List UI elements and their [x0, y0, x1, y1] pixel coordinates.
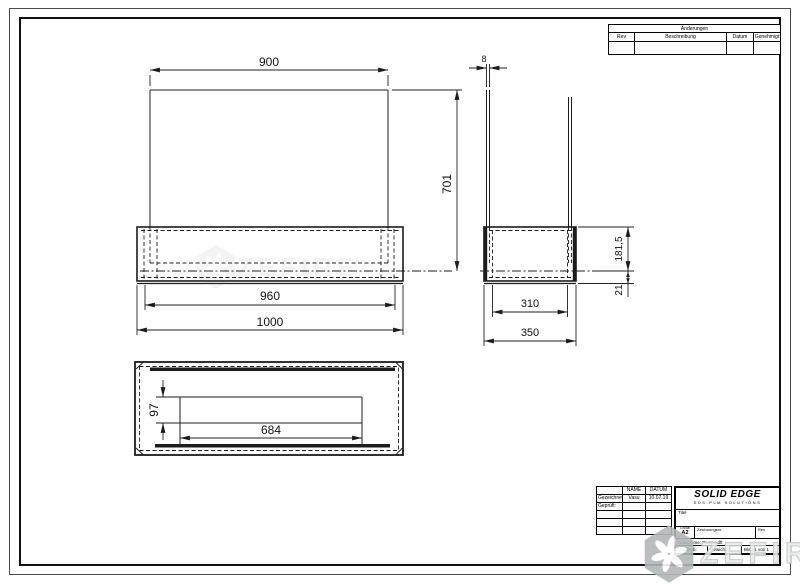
- drawn-row: Gezeichnet: Vasu 10.07.19: [597, 495, 671, 503]
- empty-signature-row: [597, 511, 671, 519]
- revision-table: Änderungen Rev Beschreibung Datum Genehm…: [608, 24, 781, 55]
- side-hidden-lines: [487, 227, 572, 278]
- drawing-page: { "revision_table": { "title": "Änderung…: [0, 0, 800, 583]
- drawing-number-row: Größe A2 Zeichnungsnr. Rev: [676, 527, 779, 539]
- titleblock-main: SOLID EDGE EDS-PLM SOLUTIONS Titel Größe…: [674, 486, 781, 555]
- solid-edge-logo: SOLID EDGE EDS-PLM SOLUTIONS: [676, 488, 779, 510]
- revision-table-title: Änderungen: [609, 25, 780, 33]
- revision-col-date: Datum: [726, 33, 753, 42]
- size-value: A2: [676, 531, 694, 537]
- front-box-outline: [137, 227, 403, 281]
- empty-signature-row: [597, 527, 671, 534]
- dim-side-glass-thickness: 8: [481, 54, 486, 64]
- side-box-thick-edges: [486, 227, 575, 281]
- dim-side-box-height: 181,5: [614, 236, 625, 261]
- revision-col-desc: Beschreibung: [634, 33, 726, 42]
- bottom-view-lines: [135, 362, 403, 455]
- checked-label: Geprüft:: [597, 503, 622, 510]
- size-field: Größe A2: [676, 527, 695, 538]
- dim-front-inner-width: 960: [260, 289, 280, 303]
- drawn-label: Gezeichnet:: [597, 495, 622, 502]
- drawing-no-field: Zeichnungsnr.: [695, 527, 756, 538]
- logo-subtitle: EDS-PLM SOLUTIONS: [676, 501, 779, 505]
- dim-side-outer-depth: 350: [521, 327, 539, 339]
- dim-bottom-slot-height: 97: [147, 403, 161, 417]
- drawn-name: Vasu: [622, 495, 645, 502]
- bottom-glass-strip-top: [150, 368, 395, 372]
- date-header: DATUM: [645, 487, 671, 494]
- dim-front-height: 701: [440, 174, 454, 194]
- revision-table-header: Rev Beschreibung Datum Genehmigt: [609, 33, 780, 42]
- front-glass-outline: [150, 90, 388, 227]
- weight-field: Gewicht:: [708, 546, 742, 553]
- revision-table-empty-row: [609, 42, 780, 54]
- dim-front-top-width: 900: [259, 55, 279, 69]
- bottom-corner-ticks: [136, 363, 403, 455]
- side-dimension-lines: [469, 64, 634, 346]
- title-field: Titel: [676, 510, 779, 527]
- bottom-glass-strip-bottom: [155, 444, 390, 448]
- scale-row: Maßstab: Gewicht: Blatt 1 von 1: [676, 546, 779, 553]
- revision-col-rev: Rev: [609, 33, 634, 42]
- filename-field: Dateiname: Rivano.dft: [676, 539, 779, 546]
- dim-side-inner-depth: 310: [521, 298, 539, 310]
- checked-row: Geprüft:: [597, 503, 671, 511]
- front-view-lines: [137, 90, 452, 284]
- dim-front-outer-width: 1000: [257, 315, 284, 329]
- side-box-outline: [484, 227, 576, 281]
- logo-title: SOLID EDGE: [676, 490, 779, 500]
- name-header: NAME: [622, 487, 645, 494]
- drawn-date: 10.07.19: [645, 495, 671, 502]
- bottom-outer-rect: [135, 362, 403, 455]
- rev-field: Rev: [756, 527, 779, 538]
- sheet-field: Blatt 1 von 1: [742, 546, 779, 553]
- front-dimension-lines: [137, 70, 462, 335]
- titleblock-signatures: NAME DATUM Gezeichnet: Vasu 10.07.19 Gep…: [596, 486, 672, 535]
- side-glass-panes: [487, 90, 572, 227]
- revision-col-approve: Genehmigt: [753, 33, 780, 42]
- dim-side-lip-height: 21: [614, 284, 625, 296]
- scale-field: Maßstab:: [676, 546, 708, 553]
- side-view-lines: [480, 90, 598, 284]
- dim-bottom-slot-length: 684: [261, 423, 281, 437]
- empty-signature-row: [597, 519, 671, 527]
- signature-header-row: NAME DATUM: [597, 487, 671, 495]
